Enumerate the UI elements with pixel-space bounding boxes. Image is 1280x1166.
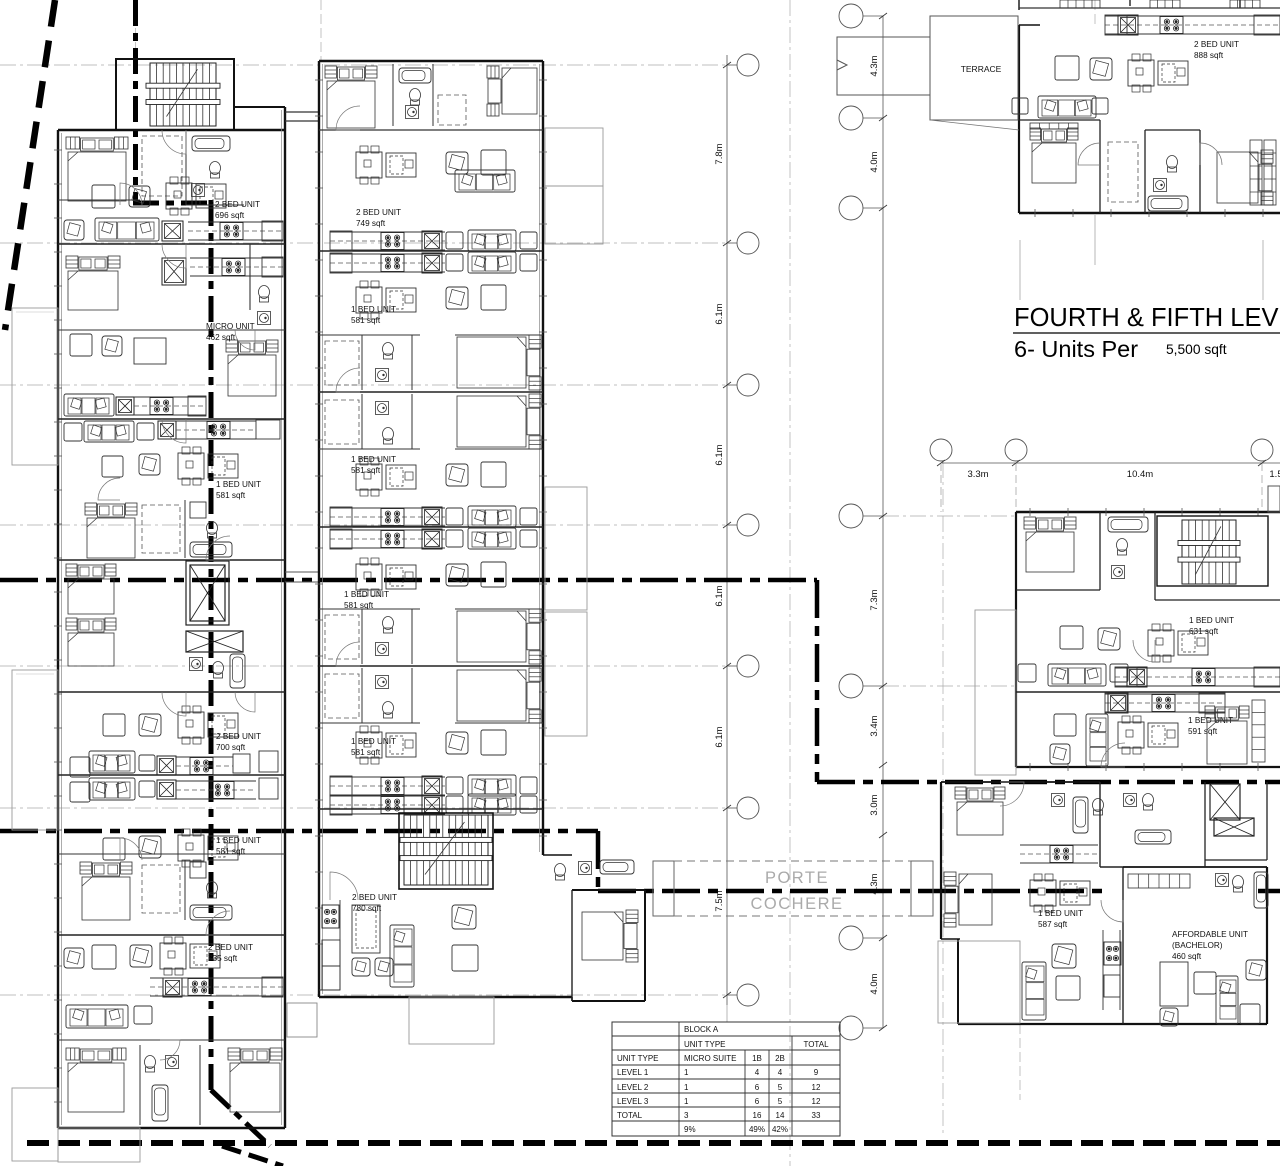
svg-text:5,500 sqft: 5,500 sqft [1166, 342, 1227, 357]
svg-text:1 BED UNIT: 1 BED UNIT [216, 836, 261, 845]
svg-text:42%: 42% [772, 1125, 788, 1134]
svg-text:1: 1 [684, 1068, 689, 1077]
svg-text:462 sqft: 462 sqft [206, 333, 236, 342]
svg-text:49%: 49% [749, 1125, 765, 1134]
svg-text:631 sqft: 631 sqft [1189, 627, 1219, 636]
svg-text:1 BED UNIT: 1 BED UNIT [216, 480, 261, 489]
svg-text:TOTAL: TOTAL [617, 1111, 643, 1120]
svg-text:TOTAL: TOTAL [803, 1040, 829, 1049]
svg-text:1: 1 [684, 1083, 689, 1092]
svg-text:LEVEL 2: LEVEL 2 [617, 1083, 649, 1092]
svg-text:COCHERE: COCHERE [750, 895, 843, 913]
svg-text:696 sqft: 696 sqft [215, 211, 245, 220]
svg-text:TERRACE: TERRACE [961, 64, 1002, 74]
svg-text:5: 5 [778, 1097, 783, 1106]
svg-text:7.5m: 7.5m [714, 890, 725, 911]
svg-text:3.0m: 3.0m [869, 794, 880, 815]
svg-text:591 sqft: 591 sqft [1188, 727, 1218, 736]
svg-text:2 BED UNIT: 2 BED UNIT [215, 200, 260, 209]
svg-text:1 BED UNIT: 1 BED UNIT [1038, 909, 1083, 918]
svg-text:1 BED UNIT: 1 BED UNIT [351, 305, 396, 314]
svg-text:1 BED UNIT: 1 BED UNIT [344, 590, 389, 599]
svg-text:MICRO SUITE: MICRO SUITE [684, 1054, 736, 1063]
svg-text:4.0m: 4.0m [869, 973, 880, 994]
svg-text:6: 6 [755, 1097, 760, 1106]
svg-text:1 BED UNIT: 1 BED UNIT [1189, 616, 1234, 625]
svg-text:749 sqft: 749 sqft [356, 219, 386, 228]
svg-text:3.3m: 3.3m [967, 469, 988, 480]
svg-text:1 BED UNIT: 1 BED UNIT [351, 455, 396, 464]
svg-text:7.8m: 7.8m [714, 143, 725, 164]
svg-text:6.1m: 6.1m [714, 726, 725, 747]
svg-text:6- Units Per: 6- Units Per [1014, 336, 1138, 362]
svg-text:581 sqft: 581 sqft [216, 847, 246, 856]
svg-text:700 sqft: 700 sqft [216, 743, 246, 752]
svg-text:6.1m: 6.1m [714, 303, 725, 324]
svg-text:3.4m: 3.4m [869, 715, 880, 736]
svg-text:2B: 2B [775, 1054, 785, 1063]
svg-text:1.5: 1.5 [1269, 469, 1280, 480]
svg-text:1: 1 [684, 1097, 689, 1106]
svg-text:(BACHELOR): (BACHELOR) [1172, 941, 1223, 950]
svg-text:888 sqft: 888 sqft [1194, 51, 1224, 60]
svg-text:4.3m: 4.3m [869, 55, 880, 76]
svg-text:PORTE: PORTE [765, 869, 829, 887]
svg-text:2 BED UNIT: 2 BED UNIT [216, 732, 261, 741]
svg-text:UNIT TYPE: UNIT TYPE [684, 1040, 726, 1049]
svg-text:14: 14 [776, 1111, 785, 1120]
svg-text:33: 33 [812, 1111, 821, 1120]
svg-text:UNIT TYPE: UNIT TYPE [617, 1054, 659, 1063]
svg-text:MICRO UNIT: MICRO UNIT [206, 322, 255, 331]
svg-text:BLOCK A: BLOCK A [684, 1025, 719, 1034]
svg-text:9: 9 [814, 1068, 819, 1077]
svg-text:581 sqft: 581 sqft [351, 748, 381, 757]
svg-text:4: 4 [778, 1068, 783, 1077]
svg-text:460 sqft: 460 sqft [1172, 952, 1202, 961]
svg-text:4: 4 [755, 1068, 760, 1077]
svg-text:12: 12 [812, 1083, 821, 1092]
svg-text:780 sqft: 780 sqft [352, 904, 382, 913]
svg-text:3: 3 [684, 1111, 689, 1120]
svg-text:FOURTH & FIFTH LEVEL: FOURTH & FIFTH LEVEL [1014, 304, 1280, 332]
svg-text:LEVEL 1: LEVEL 1 [617, 1068, 649, 1077]
svg-text:16: 16 [753, 1111, 762, 1120]
svg-text:5: 5 [778, 1083, 783, 1092]
svg-text:6.1m: 6.1m [714, 585, 725, 606]
svg-text:LEVEL 3: LEVEL 3 [617, 1097, 649, 1106]
svg-text:587 sqft: 587 sqft [1038, 920, 1068, 929]
svg-text:10.4m: 10.4m [1127, 469, 1153, 480]
svg-text:2 BED UNIT: 2 BED UNIT [352, 893, 397, 902]
svg-text:AFFORDABLE UNIT: AFFORDABLE UNIT [1172, 930, 1248, 939]
svg-text:9%: 9% [684, 1125, 696, 1134]
svg-text:1 BED UNIT: 1 BED UNIT [1188, 716, 1233, 725]
svg-text:581 sqft: 581 sqft [344, 601, 374, 610]
svg-text:2 BED UNIT: 2 BED UNIT [356, 208, 401, 217]
svg-text:581 sqft: 581 sqft [216, 491, 246, 500]
svg-text:735 sqft: 735 sqft [208, 954, 238, 963]
svg-text:4.0m: 4.0m [869, 151, 880, 172]
svg-text:581 sqft: 581 sqft [351, 466, 381, 475]
svg-text:1B: 1B [752, 1054, 762, 1063]
svg-text:2 BED UNIT: 2 BED UNIT [208, 943, 253, 952]
svg-text:1 BED UNIT: 1 BED UNIT [351, 737, 396, 746]
svg-text:12: 12 [812, 1097, 821, 1106]
svg-text:6.1m: 6.1m [714, 444, 725, 465]
svg-text:6: 6 [755, 1083, 760, 1092]
svg-text:2 BED UNIT: 2 BED UNIT [1194, 40, 1239, 49]
svg-text:7.3m: 7.3m [869, 589, 880, 610]
svg-text:581 sqft: 581 sqft [351, 316, 381, 325]
